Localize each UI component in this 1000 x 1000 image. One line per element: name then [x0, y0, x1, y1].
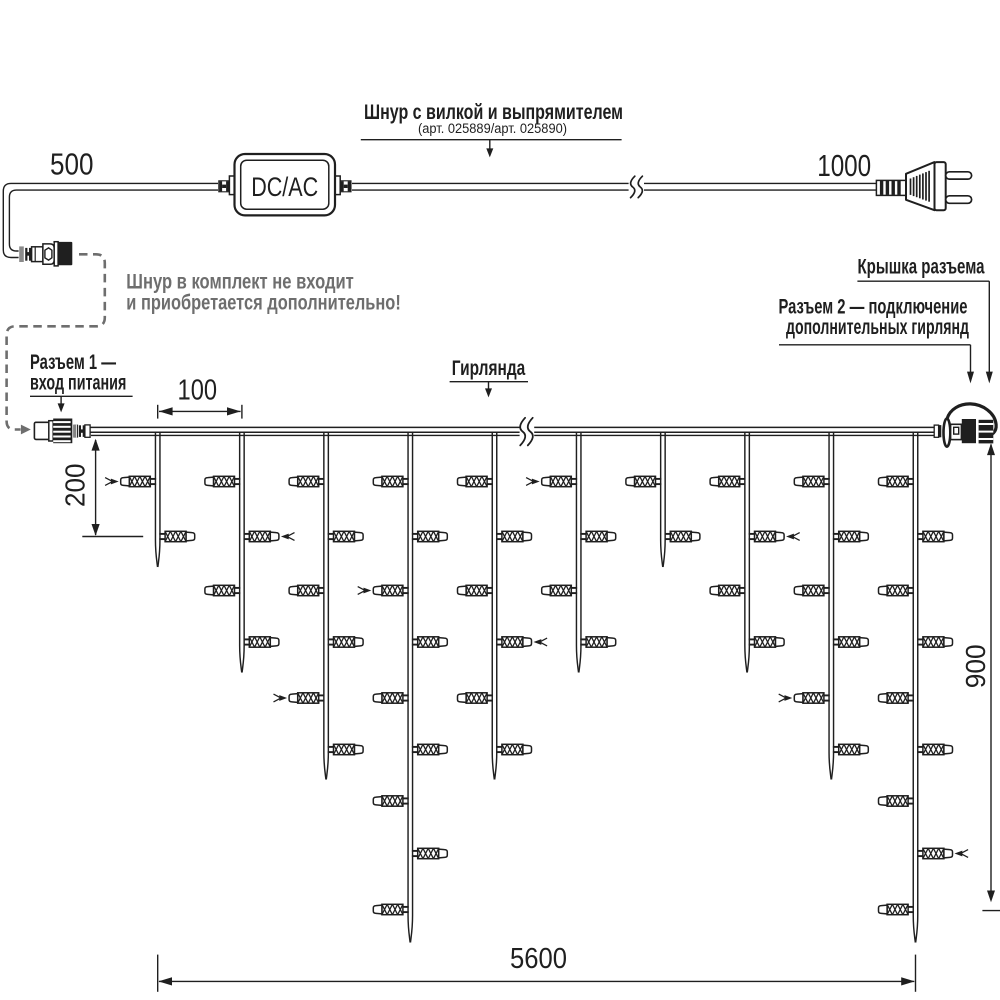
- svg-text:5600: 5600: [510, 943, 567, 975]
- svg-text:Шнур с вилкой и выпрямителем: Шнур с вилкой и выпрямителем: [364, 100, 623, 124]
- svg-text:вход питания: вход питания: [30, 371, 126, 394]
- svg-text:500: 500: [50, 147, 94, 181]
- svg-text:Гирлянда: Гирлянда: [452, 357, 526, 380]
- svg-text:Шнур в комплект не входит: Шнур в комплект не входит: [126, 271, 353, 294]
- svg-text:и приобретается дополнительно!: и приобретается дополнительно!: [126, 292, 401, 315]
- svg-text:(арт. 025889/арт. 025890): (арт. 025889/арт. 025890): [418, 121, 567, 136]
- svg-text:900: 900: [960, 644, 991, 688]
- svg-text:дополнительных гирлянд: дополнительных гирлянд: [786, 316, 969, 339]
- svg-text:DC/AC: DC/AC: [251, 172, 318, 202]
- svg-text:100: 100: [178, 375, 218, 407]
- svg-text:200: 200: [59, 464, 90, 508]
- svg-text:1000: 1000: [817, 149, 871, 183]
- svg-text:Крышка разъема: Крышка разъема: [858, 255, 985, 278]
